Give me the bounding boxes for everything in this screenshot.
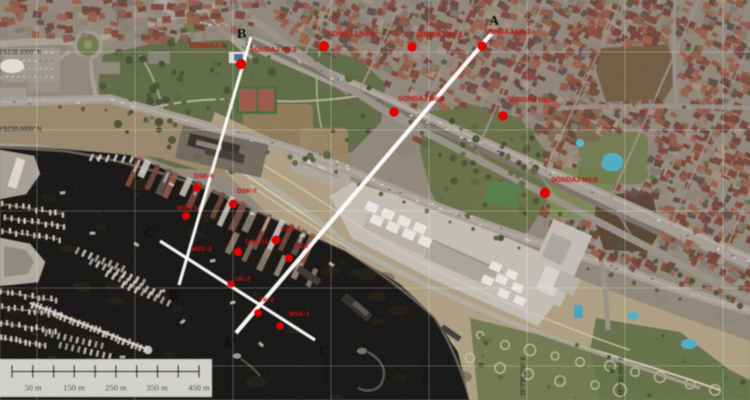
svg-text:0°52'30.0000" N: 0°52'30.0000" N [0,127,41,133]
svg-text:C: C [319,344,329,359]
svg-text:MSK-3: MSK-3 [191,246,212,253]
svg-text:0°52'25.0000" N: 0°52'25.0000" N [0,209,41,215]
svg-text:DSK-6: DSK-6 [194,173,214,180]
svg-text:DSK-7: DSK-7 [237,188,257,195]
svg-text:29°7'30.000" E: 29°7'30.000" E [521,356,527,396]
svg-text:C': C' [144,226,158,241]
svg-text:450 m: 450 m [188,383,210,393]
svg-text:B: B [237,27,246,42]
svg-text:29°7'30.000" E: 29°7'30.000" E [227,356,233,396]
svg-text:MSK-1: MSK-1 [289,311,310,318]
svg-text:SONDAJ No:4: SONDAJ No:4 [398,96,445,103]
svg-text:MSK-5: MSK-5 [177,205,198,212]
svg-text:SONDAJ No:5: SONDAJ No:5 [507,97,554,104]
svg-text:250 m: 250 m [105,383,127,393]
svg-text:SONDAJ No:2: SONDAJ No:2 [250,47,297,54]
svg-text:SONDAJ No:3: SONDAJ No:3 [484,29,531,36]
svg-text:SONDAJ-7: SONDAJ-7 [189,43,225,50]
svg-text:150 m: 150 m [63,383,85,393]
svg-text:A: A [489,14,500,29]
svg-text:50 m: 50 m [24,383,42,393]
svg-text:29°7'30.000" E: 29°7'30.000" E [619,356,625,396]
svg-text:TK-2: TK-2 [259,297,274,304]
svg-text:SONDAJ No:1: SONDAJ No:1 [416,32,463,39]
svg-text:SONDAJ No:8: SONDAJ No:8 [328,31,375,38]
svg-text:DSK-5: DSK-5 [281,226,301,233]
svg-text:29°7'30.000" E: 29°7'30.000" E [423,356,429,396]
svg-text:A': A' [222,336,236,351]
svg-text:350 m: 350 m [146,383,168,393]
svg-text:0°52'35.0000" N: 0°52'35.0000" N [0,50,41,56]
svg-text:SONDAJ No:6: SONDAJ No:6 [551,177,598,184]
svg-text:DSK-15: DSK-15 [245,239,269,246]
svg-text:DBK: DBK [294,243,309,250]
svg-text:B': B' [169,289,182,304]
svg-text:UK-2: UK-2 [235,276,251,283]
svg-text:29°7'30.000" E: 29°7'30.000" E [325,356,331,396]
svg-text:0°52'20.0000" N: 0°52'20.0000" N [0,286,41,292]
